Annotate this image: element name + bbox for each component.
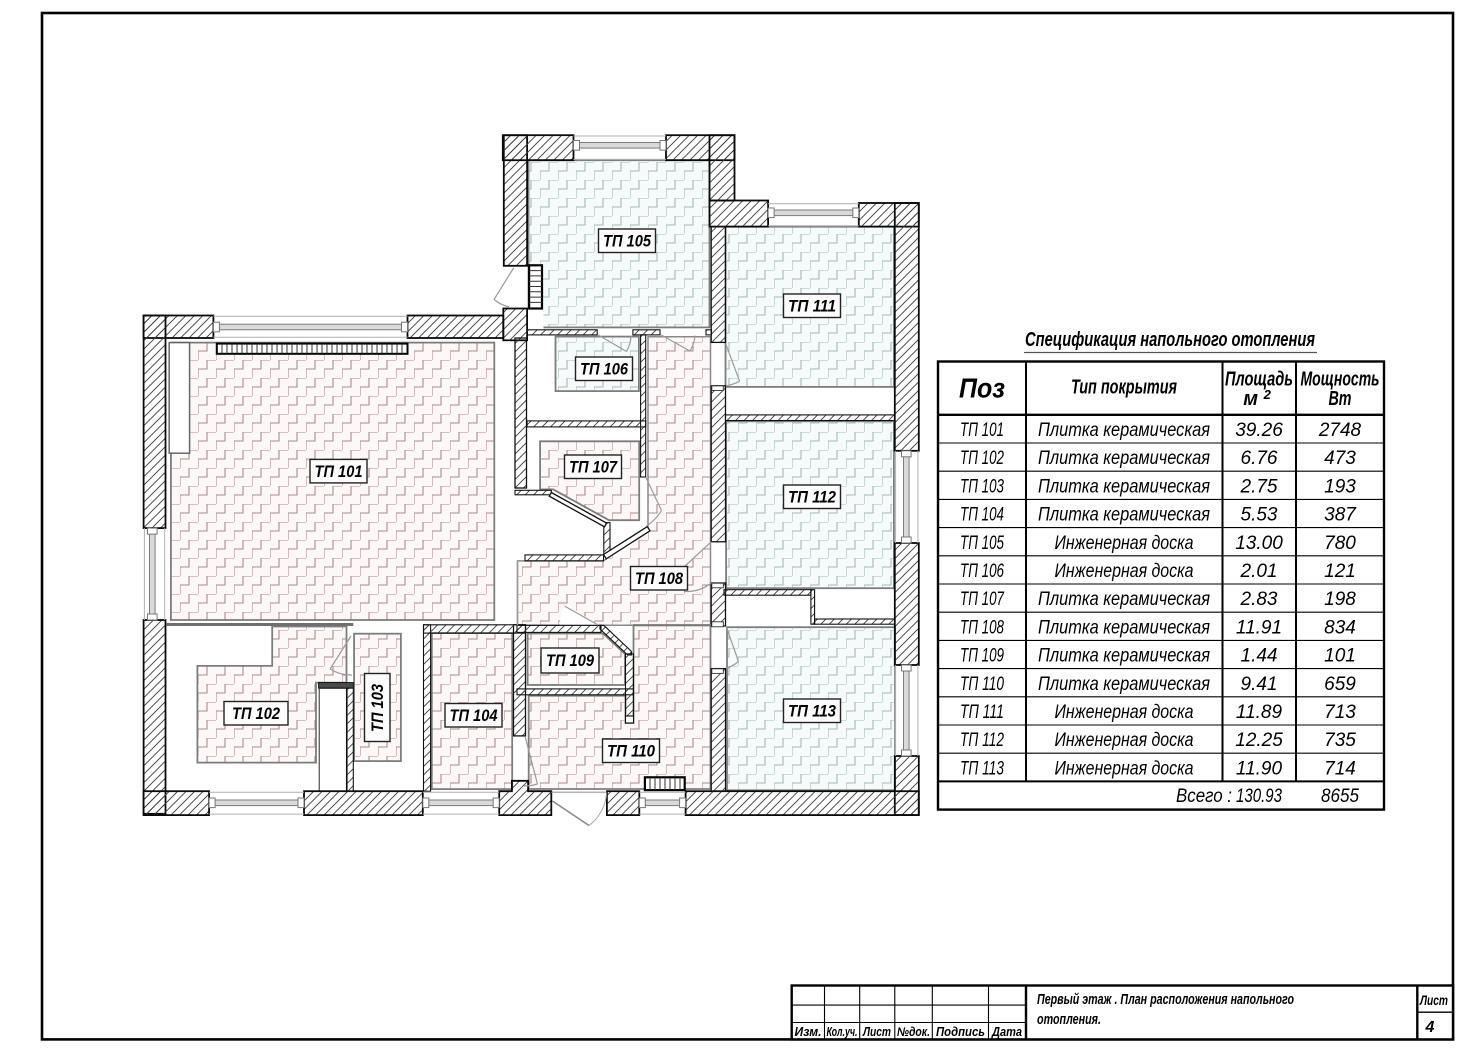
svg-text:11.90: 11.90	[1236, 758, 1283, 779]
svg-text:121: 121	[1324, 561, 1356, 582]
svg-text:387: 387	[1324, 505, 1357, 526]
svg-text:Плитка керамическая: Плитка керамическая	[1038, 505, 1210, 526]
svg-text:193: 193	[1324, 476, 1356, 497]
svg-text:ТП 110: ТП 110	[960, 674, 1004, 695]
svg-text:ТП 102: ТП 102	[960, 448, 1004, 469]
svg-text:Лист: Лист	[862, 1025, 891, 1039]
svg-text:Инженерная доска: Инженерная доска	[1055, 758, 1194, 779]
svg-text:ТП 112: ТП 112	[788, 489, 836, 507]
svg-text:Инженерная доска: Инженерная доска	[1055, 730, 1194, 751]
svg-text:ТП 113: ТП 113	[788, 703, 836, 721]
svg-text:Дата: Дата	[991, 1025, 1022, 1039]
svg-text:ТП 109: ТП 109	[546, 652, 595, 670]
svg-text:Инженерная доска: Инженерная доска	[1055, 533, 1194, 554]
svg-text:2748: 2748	[1318, 420, 1362, 441]
svg-text:ТП 103: ТП 103	[960, 476, 1004, 497]
svg-text:ТП 105: ТП 105	[603, 233, 652, 251]
svg-text:ТП 102: ТП 102	[232, 705, 280, 723]
svg-text:Плитка керамическая: Плитка керамическая	[1038, 420, 1210, 441]
svg-text:ТП 112: ТП 112	[960, 730, 1004, 751]
svg-text:659: 659	[1324, 674, 1356, 695]
svg-text:ТП 105: ТП 105	[960, 533, 1004, 554]
svg-text:ТП 108: ТП 108	[635, 570, 684, 588]
svg-text:101: 101	[1324, 646, 1356, 667]
svg-text:5.53: 5.53	[1241, 505, 1278, 526]
svg-text:4: 4	[1425, 1019, 1435, 1036]
svg-text:ТП 113: ТП 113	[960, 758, 1004, 779]
svg-text:2.01: 2.01	[1240, 561, 1278, 582]
svg-text:Поз: Поз	[959, 373, 1005, 404]
svg-text:ТП 111: ТП 111	[788, 298, 836, 316]
svg-text:Лист: Лист	[1419, 993, 1448, 1008]
svg-text:ТП 111: ТП 111	[960, 702, 1004, 723]
svg-text:ТП 101: ТП 101	[315, 463, 363, 481]
svg-text:ТП 106: ТП 106	[960, 561, 1004, 582]
svg-text:735: 735	[1324, 730, 1356, 751]
svg-text:Плитка керамическая: Плитка керамическая	[1038, 589, 1210, 610]
svg-text:ТП 101: ТП 101	[960, 420, 1004, 441]
svg-text:11.91: 11.91	[1236, 617, 1282, 638]
svg-text:ТП 110: ТП 110	[607, 743, 656, 761]
svg-text:2.83: 2.83	[1240, 589, 1278, 610]
svg-text:780: 780	[1324, 533, 1356, 554]
svg-text:Инженерная доска: Инженерная доска	[1055, 702, 1194, 723]
svg-text:Кол.уч.: Кол.уч.	[827, 1025, 858, 1039]
svg-text:13.00: 13.00	[1235, 533, 1283, 554]
svg-text:Спецификация напольного отопле: Спецификация напольного отопления	[1025, 329, 1315, 351]
svg-text:130.93: 130.93	[1236, 785, 1282, 807]
svg-text:Первый этаж . План расположени: Первый этаж . План расположения напольно…	[1037, 992, 1294, 1008]
svg-text:Всего :: Всего :	[1176, 785, 1232, 807]
svg-text:11.89: 11.89	[1236, 702, 1283, 723]
svg-text:Плитка керамическая: Плитка керамическая	[1038, 448, 1210, 469]
svg-text:714: 714	[1324, 758, 1356, 779]
svg-text:ТП 104: ТП 104	[960, 505, 1004, 526]
svg-text:отопления.: отопления.	[1037, 1012, 1101, 1028]
svg-text:ТП 107: ТП 107	[960, 589, 1005, 610]
svg-text:713: 713	[1324, 702, 1356, 723]
svg-text:834: 834	[1324, 617, 1356, 638]
svg-text:ТП 108: ТП 108	[960, 617, 1004, 638]
svg-text:№док.: №док.	[897, 1025, 930, 1039]
svg-text:1.44: 1.44	[1241, 646, 1278, 667]
svg-text:12.25: 12.25	[1235, 730, 1283, 751]
svg-text:Изм.: Изм.	[795, 1025, 822, 1039]
svg-text:473: 473	[1324, 448, 1356, 469]
svg-text:9.41: 9.41	[1241, 674, 1278, 695]
svg-text:ТП 109: ТП 109	[960, 646, 1004, 667]
svg-text:Вт: Вт	[1329, 388, 1352, 410]
svg-text:ТП 106: ТП 106	[580, 361, 629, 379]
svg-text:39.26: 39.26	[1235, 420, 1283, 441]
svg-text:Плитка керамическая: Плитка керамическая	[1038, 617, 1210, 638]
svg-text:Плитка керамическая: Плитка керамическая	[1038, 646, 1210, 667]
svg-text:ТП 103: ТП 103	[369, 684, 387, 732]
svg-text:Плитка керамическая: Плитка керамическая	[1038, 674, 1210, 695]
svg-text:Тип покрытия: Тип покрытия	[1071, 377, 1177, 399]
svg-text:Подпись: Подпись	[936, 1025, 985, 1039]
svg-text:6.76: 6.76	[1241, 448, 1278, 469]
svg-text:Плитка керамическая: Плитка керамическая	[1038, 476, 1210, 497]
svg-text:198: 198	[1324, 589, 1356, 610]
svg-text:2.75: 2.75	[1240, 476, 1278, 497]
svg-text:Инженерная доска: Инженерная доска	[1055, 561, 1194, 582]
svg-text:8655: 8655	[1321, 785, 1359, 807]
svg-text:ТП 104: ТП 104	[450, 707, 498, 725]
svg-text:ТП 107: ТП 107	[569, 459, 618, 477]
